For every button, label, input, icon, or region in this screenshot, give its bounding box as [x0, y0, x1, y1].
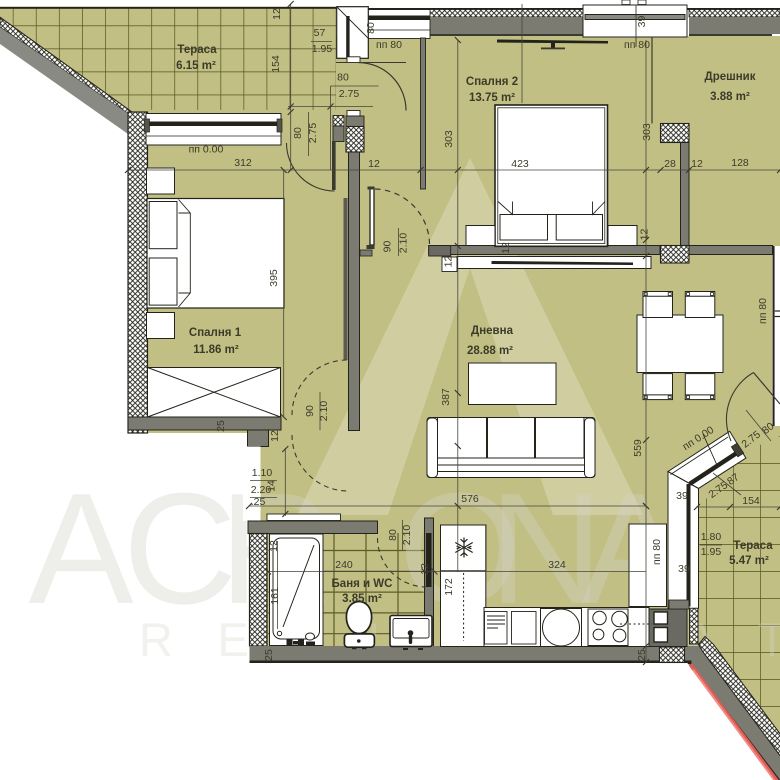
svg-text:пп 0.00: пп 0.00	[189, 144, 224, 156]
svg-text:324: 324	[548, 559, 566, 571]
svg-text:2.10: 2.10	[401, 525, 413, 546]
svg-text:1.95: 1.95	[312, 43, 333, 55]
svg-text:A: A	[28, 461, 134, 637]
svg-text:423: 423	[511, 158, 529, 170]
svg-text:25: 25	[263, 649, 275, 661]
svg-text:R: R	[139, 613, 173, 666]
svg-text:12: 12	[269, 430, 281, 442]
svg-text:3.88 m²: 3.88 m²	[710, 91, 750, 103]
svg-text:1.95: 1.95	[701, 546, 722, 558]
svg-text:2.10: 2.10	[318, 401, 330, 422]
svg-text:12: 12	[443, 256, 455, 268]
svg-text:2.75: 2.75	[339, 88, 360, 100]
svg-text:25: 25	[215, 420, 227, 432]
svg-text:57: 57	[314, 27, 326, 39]
svg-text:3.85 m²: 3.85 m²	[342, 593, 382, 605]
svg-text:303: 303	[641, 123, 653, 141]
svg-text:25: 25	[636, 649, 648, 661]
svg-text:12: 12	[500, 242, 512, 254]
svg-text:13.75 m²: 13.75 m²	[469, 92, 515, 104]
svg-text:395: 395	[268, 269, 280, 287]
svg-text:Дневна: Дневна	[471, 325, 514, 337]
svg-text:39: 39	[636, 16, 648, 28]
svg-text:2.75: 2.75	[307, 123, 319, 144]
svg-text:11.86 m²: 11.86 m²	[193, 344, 239, 356]
svg-text:1.80: 1.80	[701, 531, 722, 543]
svg-text:6.15 m²: 6.15 m²	[176, 60, 216, 72]
svg-text:2.10: 2.10	[398, 233, 410, 254]
svg-text:12: 12	[691, 158, 703, 170]
svg-text:12: 12	[368, 158, 380, 170]
svg-text:387: 387	[440, 388, 452, 406]
svg-text:80: 80	[292, 127, 304, 139]
svg-text:172: 172	[443, 578, 455, 596]
svg-text:576: 576	[461, 493, 479, 505]
svg-text:Баня и WC: Баня и WC	[332, 578, 393, 590]
svg-text:Спалня 2: Спалня 2	[466, 76, 518, 88]
svg-text:Дрешник: Дрешник	[705, 71, 756, 83]
svg-text:80: 80	[387, 529, 399, 541]
svg-text:80: 80	[337, 72, 349, 84]
svg-text:Тераса: Тераса	[177, 44, 217, 56]
svg-text:пп 80: пп 80	[757, 298, 769, 324]
svg-text:12: 12	[419, 563, 431, 575]
svg-text:14: 14	[266, 480, 278, 492]
svg-text:154: 154	[270, 55, 282, 73]
svg-text:E: E	[217, 613, 248, 666]
svg-text:пп 80: пп 80	[651, 539, 663, 565]
svg-text:12: 12	[271, 8, 283, 20]
svg-text:.25: .25	[251, 496, 266, 508]
svg-text:28.88 m²: 28.88 m²	[467, 345, 513, 357]
svg-text:Спалня 1: Спалня 1	[189, 327, 242, 339]
svg-text:39: 39	[676, 490, 688, 502]
svg-text:5.47 m²: 5.47 m²	[729, 555, 769, 567]
svg-text:28: 28	[664, 158, 676, 170]
svg-text:1.10: 1.10	[252, 467, 273, 479]
svg-text:Тераса: Тераса	[733, 540, 773, 552]
svg-text:90: 90	[382, 241, 394, 253]
svg-text:80: 80	[365, 22, 377, 34]
svg-text:559: 559	[632, 439, 644, 457]
svg-text:154: 154	[742, 495, 760, 507]
svg-text:пп 80: пп 80	[624, 39, 650, 51]
svg-text:240: 240	[335, 559, 353, 571]
svg-text:T: T	[758, 613, 780, 666]
svg-text:128: 128	[731, 157, 749, 169]
svg-text:12: 12	[639, 229, 651, 241]
svg-text:90: 90	[304, 405, 316, 417]
svg-text:312: 312	[234, 157, 252, 169]
svg-text:39: 39	[678, 563, 690, 575]
svg-text:303: 303	[443, 130, 455, 148]
svg-text:12: 12	[268, 540, 280, 552]
svg-text:161: 161	[269, 587, 281, 605]
svg-text:пп 80: пп 80	[376, 39, 402, 51]
